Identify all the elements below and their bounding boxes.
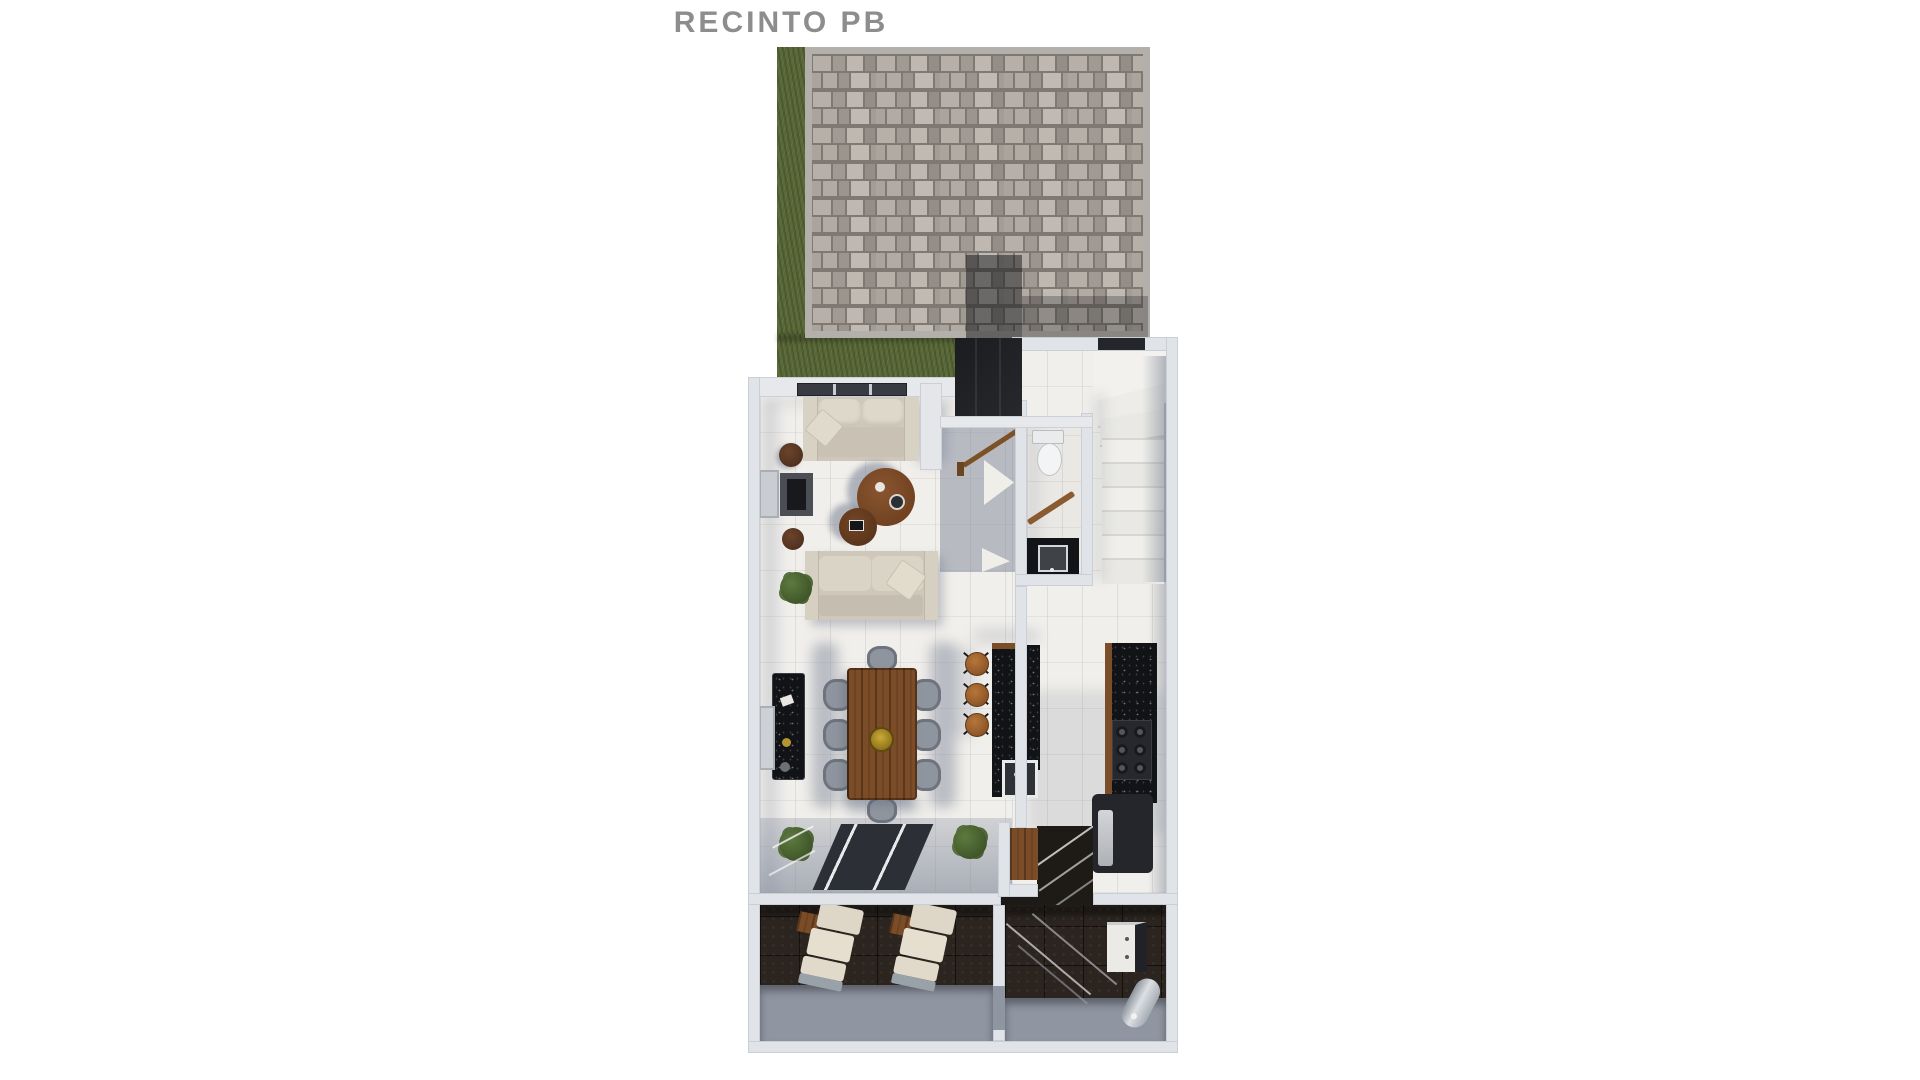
page-title: RECINTO PB xyxy=(651,6,911,40)
canopy-shadow-on-pavers-2 xyxy=(1022,296,1148,338)
stair-handrail-post xyxy=(957,462,964,476)
glass-panel-line xyxy=(975,338,977,416)
storage-cabinet xyxy=(1107,922,1147,972)
cabinet-decor-gold xyxy=(782,738,791,747)
dining-table xyxy=(847,668,917,800)
top-wall-right xyxy=(1012,337,1178,351)
bar-stool xyxy=(965,713,989,737)
table-decor-bowl xyxy=(889,494,905,510)
stairs-down xyxy=(1037,826,1093,905)
burner xyxy=(1134,762,1146,774)
landing-left-wall xyxy=(998,822,1010,897)
side-table-round xyxy=(782,528,804,550)
bar-top-shadow xyxy=(973,628,1040,644)
refrigerator-door-face xyxy=(1098,810,1113,866)
entry-door-dark xyxy=(1098,338,1145,350)
bathroom-bottom-wall xyxy=(1015,574,1093,586)
bottom-outer-wall xyxy=(748,1041,1178,1053)
burner xyxy=(1116,762,1128,774)
heater-cap xyxy=(1130,1012,1138,1020)
dining-chair xyxy=(867,797,897,823)
burner xyxy=(1116,744,1128,756)
terrace-door-opening xyxy=(993,986,1005,1030)
mid-wall-left xyxy=(748,893,1001,905)
coffee-table-small xyxy=(839,508,877,546)
floor-plan-render: RECINTO PB xyxy=(0,0,1920,1080)
sofa-back-cushion xyxy=(862,399,904,426)
hall-shadow-zone xyxy=(940,428,1016,572)
window-mullion xyxy=(869,384,872,395)
canopy-shadow-on-pavers xyxy=(966,255,1022,338)
glass-panel-line xyxy=(999,338,1001,416)
sink-faucet xyxy=(1050,568,1054,572)
stair-right-shadow xyxy=(1142,356,1166,582)
entry-inner-wall-band xyxy=(940,416,1093,428)
cabinet-knob xyxy=(1125,937,1129,941)
cabinet-knob xyxy=(1125,955,1129,959)
living-window xyxy=(797,383,907,396)
bathroom-right-wall xyxy=(1081,413,1093,586)
window-mullion xyxy=(833,384,836,395)
terrace-concrete-floor xyxy=(760,985,993,1041)
table-centerpiece-gold xyxy=(871,729,892,750)
table-decor-cup xyxy=(875,482,885,492)
toilet-bowl xyxy=(1037,443,1062,476)
right-outer-wall xyxy=(1166,337,1178,1053)
side-table-round xyxy=(779,443,803,467)
wall-art xyxy=(759,706,775,770)
counter-wood-edge xyxy=(1105,643,1112,803)
sofa-top xyxy=(803,397,918,461)
sofa-middle xyxy=(805,551,937,620)
kitchen-divider-wall xyxy=(1015,586,1027,828)
terrace-room-left xyxy=(760,905,993,1041)
stair-wood-landing xyxy=(1010,828,1038,880)
burner xyxy=(1134,744,1146,756)
step-edge xyxy=(1037,826,1093,868)
tv-console xyxy=(780,473,813,516)
terrace-room-right xyxy=(1005,905,1166,1041)
cabinet-decor-card xyxy=(780,694,794,707)
stair-left-shadow xyxy=(1093,392,1105,582)
living-right-wall xyxy=(920,383,942,470)
kitchen-wall-counter xyxy=(1027,645,1040,770)
tv-screen xyxy=(787,479,806,510)
cabinet-decor-bowl xyxy=(780,762,790,772)
mid-wall-right xyxy=(1093,893,1178,905)
bar-stool xyxy=(965,683,989,707)
terrace-dark-floor xyxy=(760,905,993,995)
sofa-armrest xyxy=(924,551,938,620)
toilet-tank xyxy=(1032,430,1064,444)
potted-plant xyxy=(780,572,812,604)
potted-plant xyxy=(779,827,813,861)
bar-cabinet xyxy=(773,674,804,779)
potted-plant xyxy=(953,825,987,859)
wall-art xyxy=(759,470,779,518)
entry-glass-volume xyxy=(955,338,1022,416)
burner xyxy=(1134,726,1146,738)
wall-shadow xyxy=(1005,905,1166,915)
sofa-seat-cushion xyxy=(819,556,871,591)
burner xyxy=(1116,726,1128,738)
bar-stool xyxy=(965,652,989,676)
sofa-armrest xyxy=(904,397,919,461)
breakfast-bar-wood-edge xyxy=(992,643,1017,649)
left-outer-wall xyxy=(748,377,760,1053)
table-decor-book xyxy=(849,520,864,531)
grass-strip-left xyxy=(777,47,807,338)
